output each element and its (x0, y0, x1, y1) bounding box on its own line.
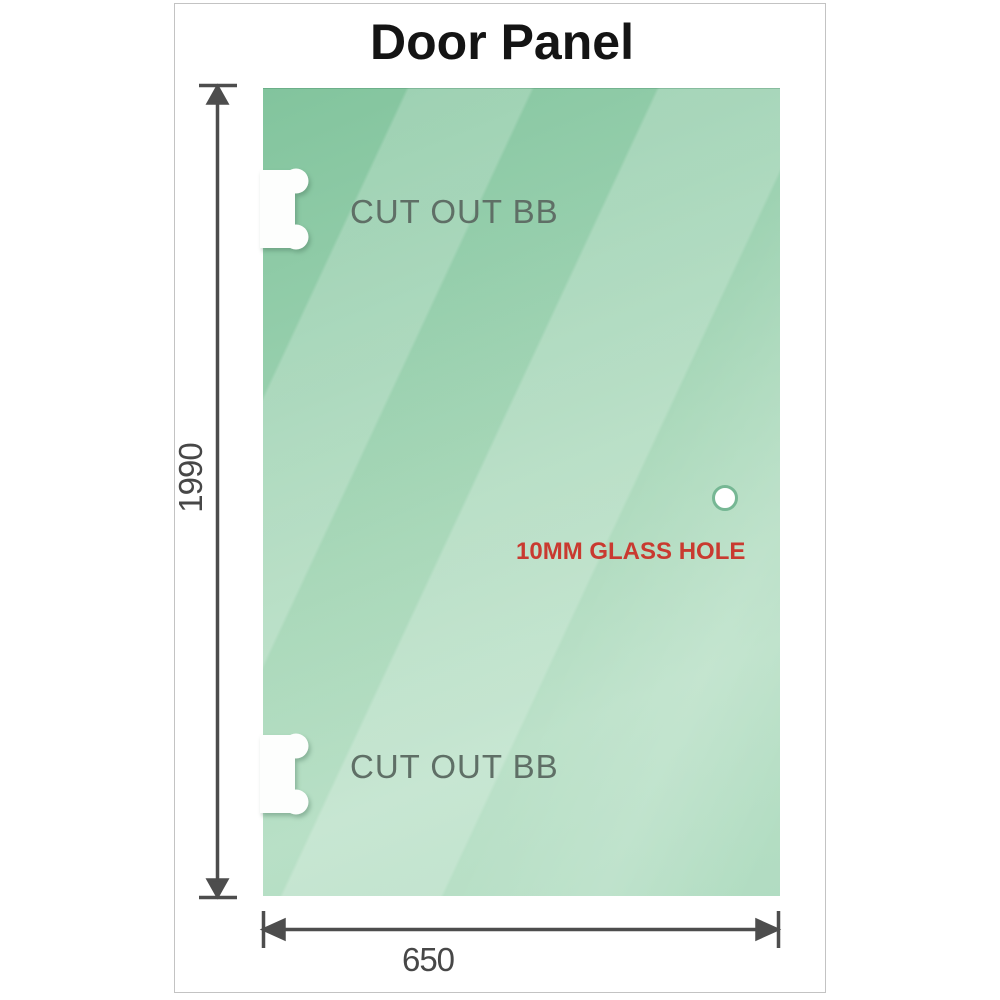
glass-hole (712, 485, 738, 511)
width-dimension-label: 650 (402, 941, 454, 979)
cutout-top-label: CUT OUT BB (350, 193, 559, 231)
height-dimension-label: 1990 (172, 443, 210, 512)
drawing-stage: Door Panel CUT OUT BB CUT OUT BB 10MM GL… (0, 0, 1000, 1000)
cutout-lobe-top (284, 734, 309, 759)
cutout-lobe-bottom (284, 225, 309, 250)
hinge-cutout-top (262, 167, 314, 251)
cutout-lobe-top (284, 169, 309, 194)
page-title: Door Panel (370, 13, 634, 71)
glass-hole-label: 10MM GLASS HOLE (516, 538, 745, 566)
cutout-bottom-label: CUT OUT BB (350, 748, 559, 786)
hinge-cutout-bottom (262, 732, 314, 816)
cutout-lobe-bottom (284, 790, 309, 815)
